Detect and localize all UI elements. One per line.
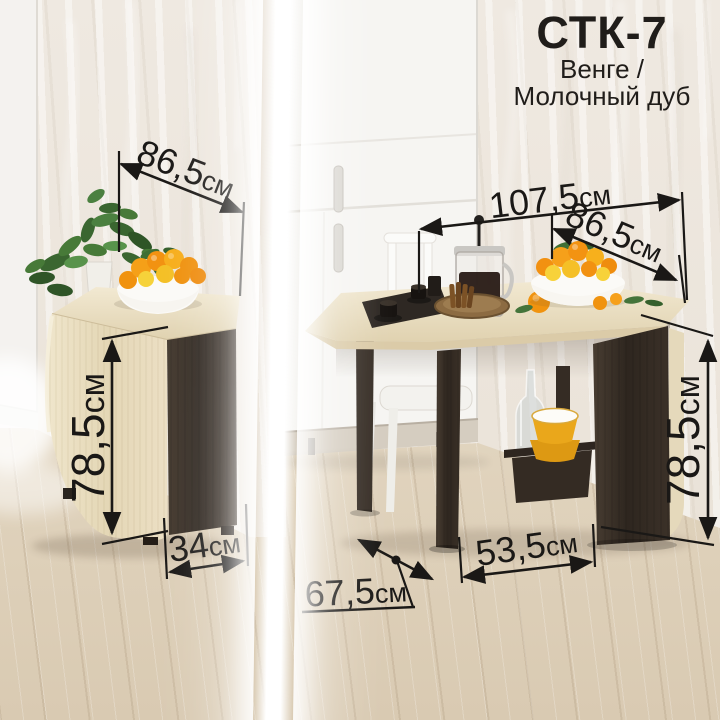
orange (593, 296, 607, 310)
svg-text:67,5см: 67,5см (304, 568, 408, 614)
finish-name-line1: Венге / (476, 56, 720, 83)
yellow-bowls (530, 409, 580, 463)
tangerine (610, 293, 622, 305)
model-name: СТК-7 (476, 10, 720, 56)
spice-jar (428, 276, 441, 296)
product-image: 86,5см 78,5см 34см 107,5см (0, 0, 720, 720)
dim-unfolded-leg-span: 53,5см (459, 519, 595, 583)
cabinet-handle (334, 224, 343, 272)
finish-name-line2: Молочный дуб (476, 83, 720, 110)
product-title-block: СТК-7 Венге / Молочный дуб (476, 10, 720, 110)
cabinet-handle (334, 166, 343, 212)
table-foot (143, 537, 158, 545)
table-leg-back (356, 329, 374, 512)
under-table-pedestal (504, 366, 600, 503)
